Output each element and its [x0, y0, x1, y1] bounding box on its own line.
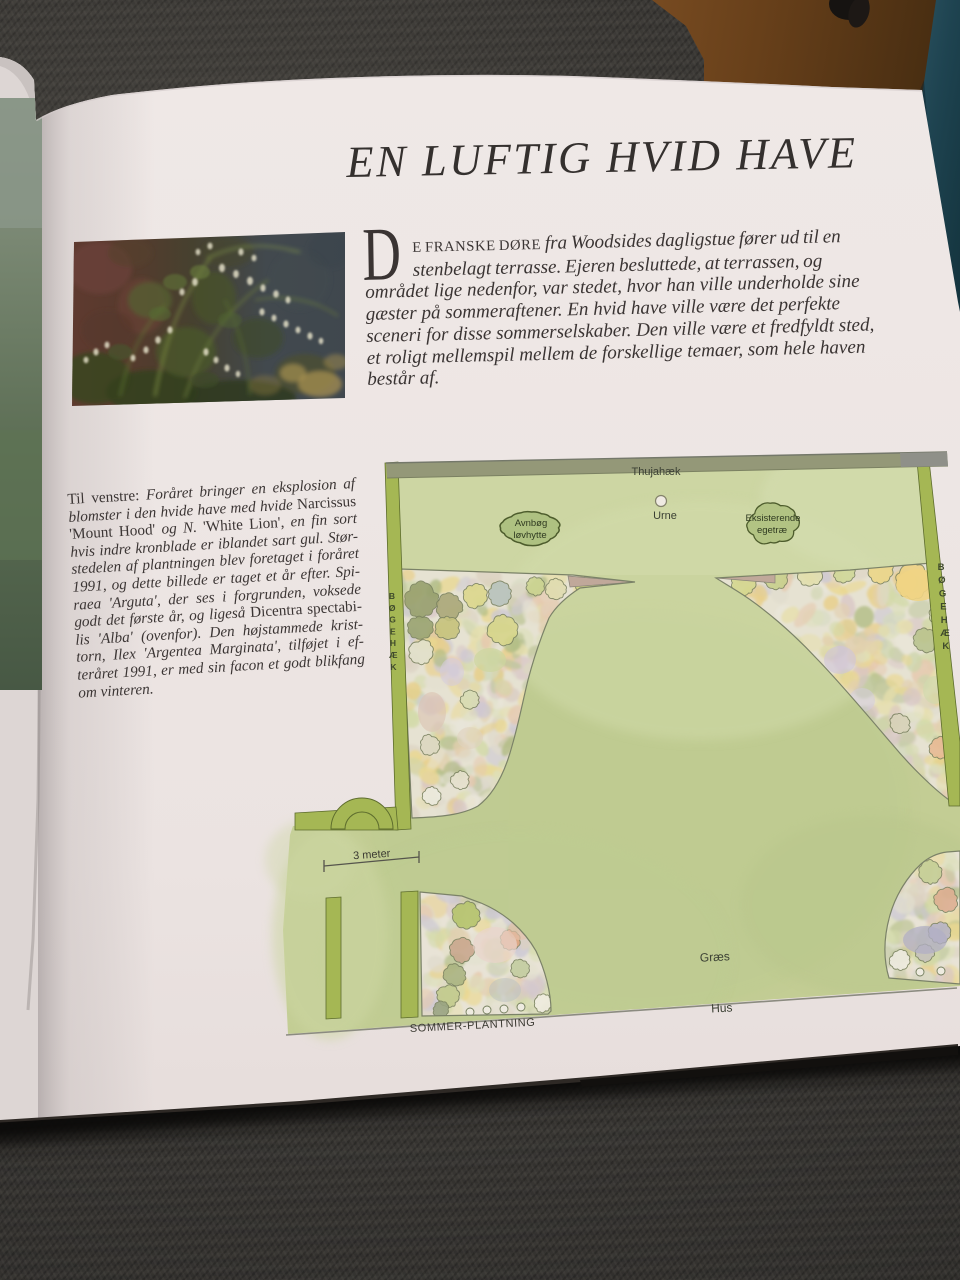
svg-text:Hus: Hus — [711, 1000, 733, 1015]
svg-text:G: G — [939, 588, 946, 599]
svg-text:G: G — [389, 615, 396, 625]
svg-text:E: E — [940, 602, 946, 613]
svg-text:Græs: Græs — [699, 949, 730, 965]
svg-text:B: B — [938, 562, 945, 573]
svg-text:egetræ: egetræ — [757, 525, 788, 536]
svg-text:H: H — [941, 615, 948, 626]
svg-text:K: K — [390, 662, 397, 672]
svg-text:Ø: Ø — [938, 575, 945, 586]
svg-text:løvhytte: løvhytte — [513, 530, 546, 541]
svg-text:Æ: Æ — [389, 650, 398, 660]
svg-text:H: H — [390, 638, 396, 648]
svg-text:B: B — [389, 591, 395, 601]
svg-text:Avnbøg: Avnbøg — [515, 518, 548, 529]
svg-text:Thujahæk: Thujahæk — [632, 466, 681, 478]
svg-text:Eksisterende: Eksisterende — [746, 513, 801, 524]
svg-text:K: K — [942, 641, 949, 652]
svg-text:E: E — [390, 626, 396, 636]
svg-text:Æ: Æ — [940, 628, 950, 639]
svg-text:Ø: Ø — [389, 603, 396, 613]
svg-text:Urne: Urne — [653, 510, 677, 522]
